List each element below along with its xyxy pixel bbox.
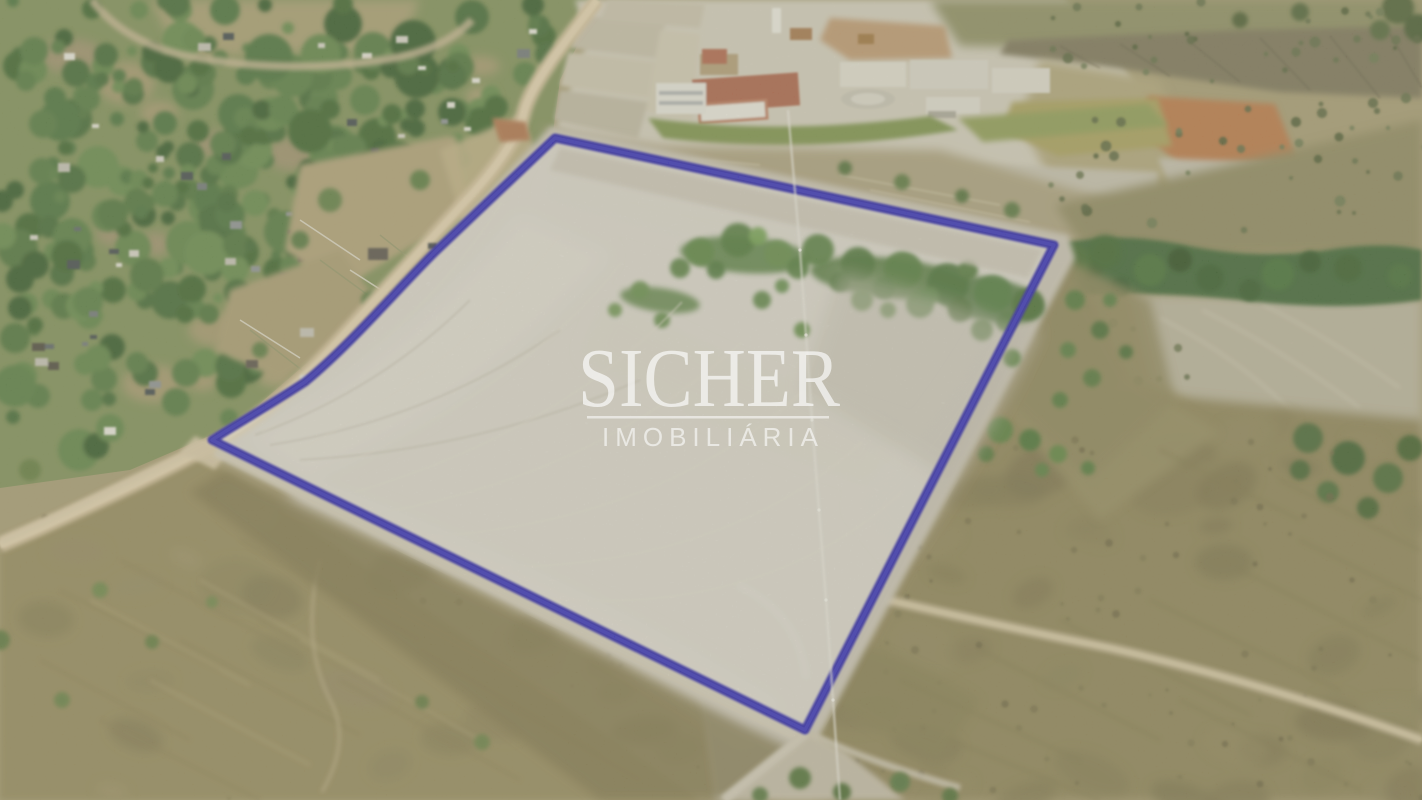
svg-text:SICHER: SICHER	[578, 332, 840, 425]
svg-text:IMOBILIÁRIA: IMOBILIÁRIA	[602, 422, 824, 452]
